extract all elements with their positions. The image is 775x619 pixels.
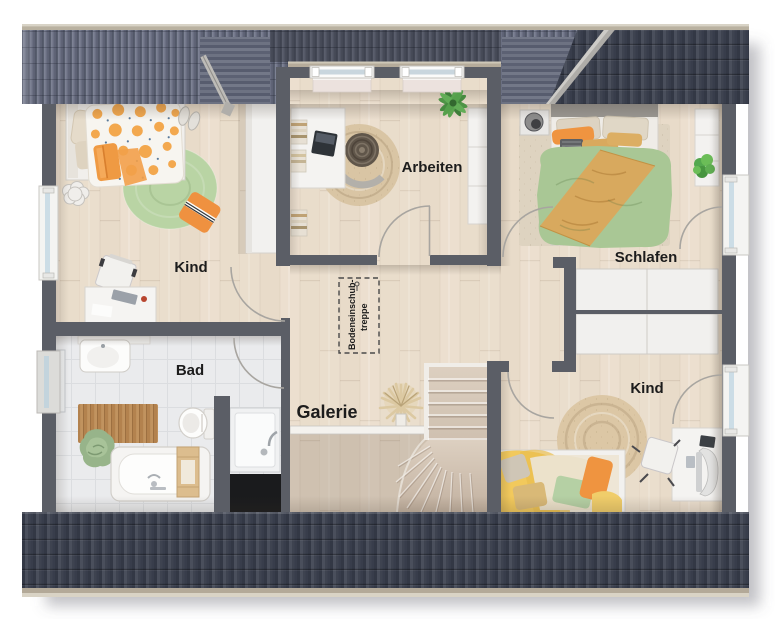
svg-text:Galerie: Galerie xyxy=(296,402,357,422)
svg-text:Arbeiten: Arbeiten xyxy=(402,159,463,176)
svg-text:Schlafen: Schlafen xyxy=(615,249,678,266)
svg-text:Kind: Kind xyxy=(630,380,663,397)
svg-text:treppe: treppe xyxy=(359,303,369,331)
svg-text:Bad: Bad xyxy=(176,362,204,379)
svg-text:Bodeneinschub-: Bodeneinschub- xyxy=(347,279,357,350)
svg-text:Kind: Kind xyxy=(174,259,207,276)
